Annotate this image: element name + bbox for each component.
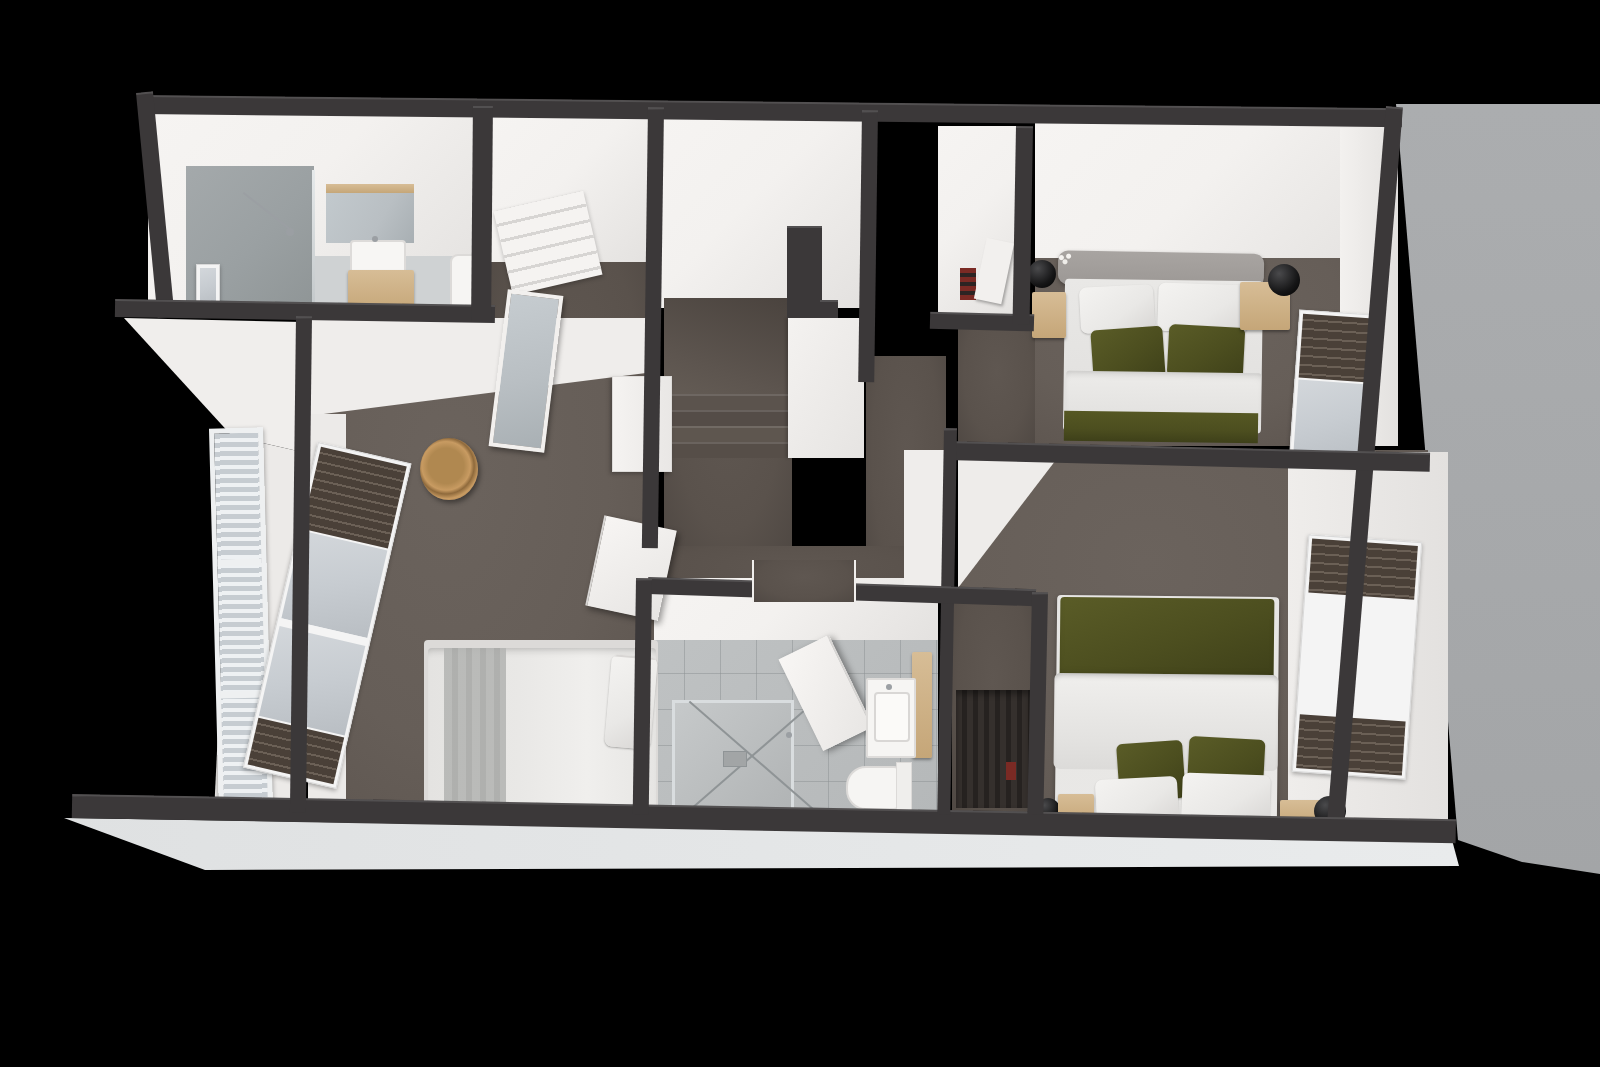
- sphere-lamp: [1268, 264, 1300, 296]
- wall-stair-east: [858, 110, 878, 382]
- stair-tread: [664, 426, 791, 442]
- wall-bathroom-west: [633, 578, 652, 814]
- stair-tread: [664, 442, 791, 458]
- stairwell: [660, 106, 866, 308]
- venetian-blind: [302, 447, 407, 549]
- wall-stair-stub-foot: [820, 300, 838, 318]
- shower-enclosure: [672, 700, 794, 812]
- floorplan-stage: [0, 0, 1600, 1067]
- ensuite-basin: [350, 240, 406, 274]
- nightstand: [1032, 292, 1066, 338]
- bedroom2-green-blanket: [1060, 597, 1275, 679]
- window-glass: [259, 626, 365, 735]
- mirror-cabinet-trim: [326, 184, 414, 193]
- closet-hanging-clothes: [956, 690, 1030, 808]
- bath-toilet: [846, 766, 902, 810]
- stair-tread: [664, 410, 790, 426]
- vanity-mirror: [326, 193, 414, 243]
- wall-stair-stub: [787, 226, 822, 318]
- wicker-basket: [420, 438, 478, 500]
- shutter-rail: [217, 558, 261, 566]
- stair-guard-wall: [788, 318, 864, 458]
- wardrobe: [612, 376, 672, 472]
- bedroom1-entry-carpet: [958, 322, 1036, 448]
- window-glass: [200, 268, 216, 304]
- bathroom-doorway: [752, 560, 856, 602]
- stair-upper-shadow: [664, 298, 792, 394]
- shower-door-handle: [786, 732, 792, 738]
- bedroom3-grey-throw: [444, 648, 506, 818]
- wall-closet1-east: [1013, 126, 1033, 324]
- shower-head: [286, 228, 294, 236]
- shower-drain: [723, 751, 747, 767]
- vase-flowers: [1056, 252, 1074, 266]
- basin-tap: [372, 236, 378, 242]
- sphere-lamp: [1028, 260, 1056, 288]
- closet-red-item: [1006, 762, 1016, 780]
- venetian-blind: [1299, 314, 1373, 383]
- wall-ensuite-dressing: [471, 106, 493, 322]
- stair-tread: [664, 394, 790, 410]
- basin-tap: [886, 684, 892, 690]
- bath-basin: [874, 692, 910, 742]
- bedroom1-green-throw: [1064, 411, 1258, 444]
- hallway-wallface: [904, 450, 946, 594]
- toilet-cistern: [896, 762, 912, 814]
- shower-glass-screen: [312, 170, 315, 310]
